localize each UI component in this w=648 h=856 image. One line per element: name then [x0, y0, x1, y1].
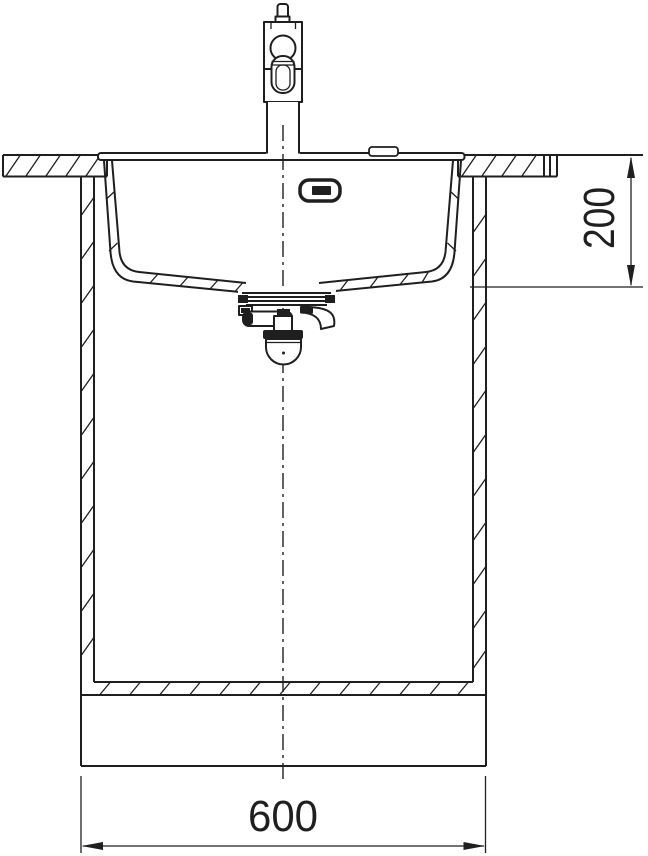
- sink-section-drawing: 200 600: [0, 0, 648, 856]
- cabinet-wall-left-hatch: [82, 198, 94, 655]
- cabinet-wall-left: [81, 177, 94, 767]
- countertop-right-hatch: [462, 156, 536, 177]
- dimension-depth-label: 200: [575, 187, 624, 249]
- drain-collar: [263, 330, 303, 339]
- tap-hole-cover: [369, 147, 398, 156]
- drain-trap-cup: [266, 339, 301, 365]
- drain-elbow-right: [301, 307, 334, 329]
- countertop-right: [458, 155, 643, 177]
- countertop-left: [3, 155, 107, 177]
- dimension-width-label: 600: [248, 792, 318, 841]
- countertop-left-hatch: [6, 156, 100, 177]
- sink-wall-left-outer: [104, 161, 245, 293]
- technical-drawing-canvas: 200 600: [0, 0, 648, 856]
- overflow-outlet: [300, 180, 340, 201]
- dimension-width-arrow-right: [464, 842, 486, 850]
- sink-wall-left-inner: [112, 161, 246, 284]
- cabinet-wall-right-hatch: [474, 215, 486, 668]
- cabinet-wall-right: [473, 177, 486, 767]
- faucet-spout: [272, 56, 295, 93]
- faucet-head: [264, 22, 302, 102]
- drain-assembly: [238, 290, 336, 365]
- sink-wall-right-outer: [320, 161, 461, 293]
- dimension-depth-arrow-up: [627, 157, 635, 179]
- faucet-lever: [276, 4, 290, 23]
- cabinet-bottom-hatch: [100, 683, 468, 695]
- dimension-width-arrow-left: [82, 842, 104, 850]
- dimension-width: 600: [81, 776, 486, 853]
- dimension-depth-arrow-down: [627, 265, 635, 287]
- sink-wall-right-inner: [319, 161, 453, 284]
